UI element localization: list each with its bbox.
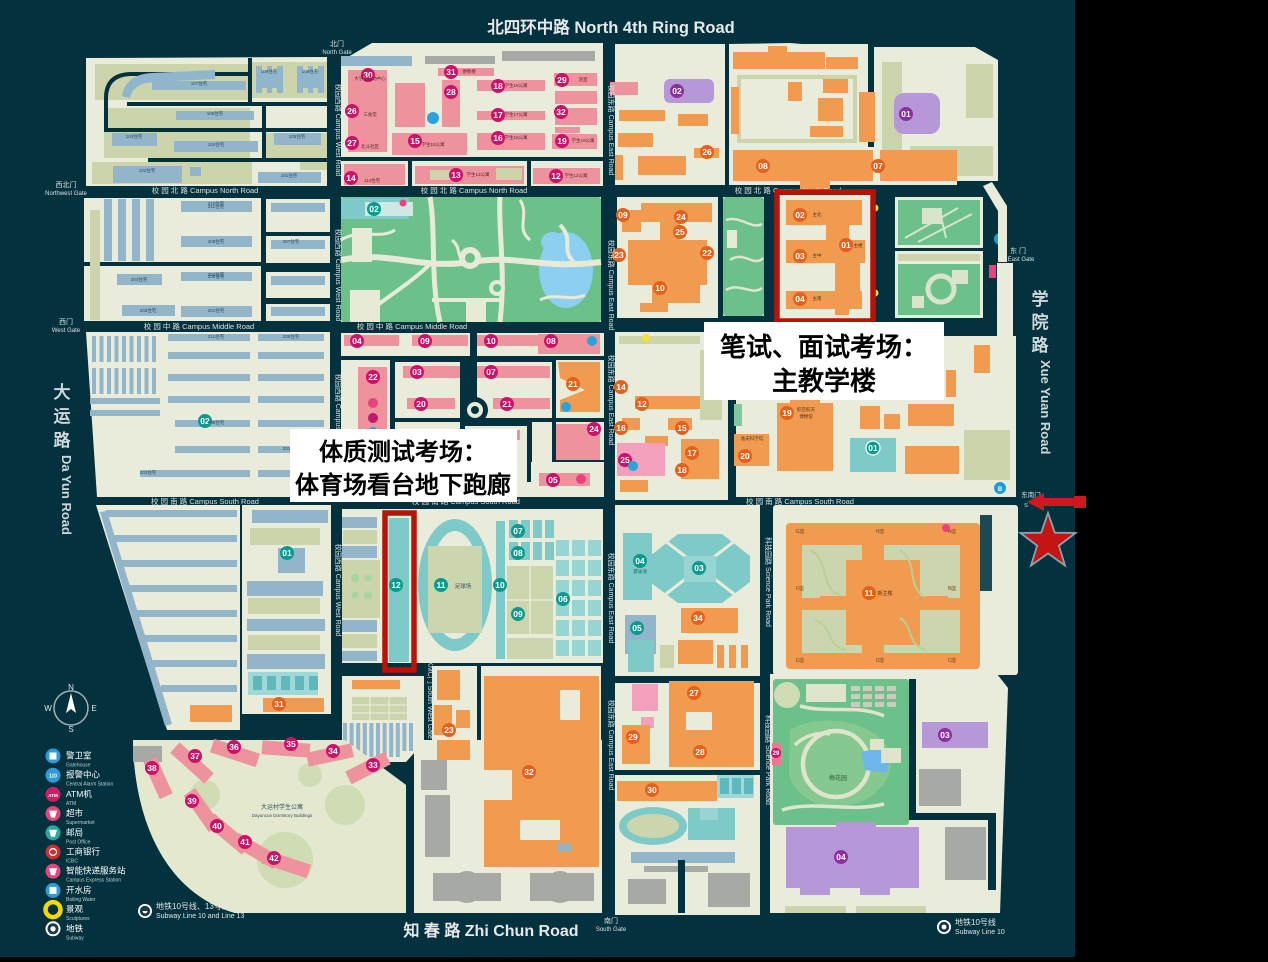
svg-text:19: 19 [557, 136, 567, 146]
svg-text:西门: 西门 [59, 317, 73, 326]
svg-text:Da Yun Road: Da Yun Road [59, 455, 74, 535]
svg-text:Dayuncun Dormitory Buildings: Dayuncun Dormitory Buildings [252, 813, 313, 818]
svg-text:14: 14 [616, 382, 626, 392]
svg-text:Subway Line 10: Subway Line 10 [955, 929, 1005, 936]
svg-text:邮局: 邮局 [66, 827, 83, 837]
svg-text:B: B [998, 487, 1003, 493]
svg-text:27: 27 [689, 688, 699, 698]
svg-text:211住宅: 211住宅 [208, 333, 225, 339]
svg-text:10: 10 [486, 336, 496, 346]
svg-text:41: 41 [240, 837, 250, 847]
svg-text:02: 02 [672, 86, 682, 96]
svg-text:大: 大 [54, 382, 71, 402]
svg-text:08: 08 [758, 161, 768, 171]
svg-text:16: 16 [616, 423, 626, 433]
svg-text:S: S [68, 725, 73, 734]
svg-text:G座: G座 [796, 528, 805, 535]
svg-text:12: 12 [637, 399, 647, 409]
svg-text:36: 36 [229, 742, 239, 752]
svg-text:22: 22 [702, 248, 712, 258]
svg-text:大运村学生公寓: 大运村学生公寓 [261, 803, 303, 811]
svg-text:B座: B座 [948, 585, 956, 592]
svg-text:39: 39 [187, 796, 197, 806]
svg-text:31: 31 [446, 67, 456, 77]
svg-text:逸夫科学馆: 逸夫科学馆 [741, 435, 764, 442]
svg-text:42: 42 [269, 853, 279, 863]
svg-text:21: 21 [502, 399, 512, 409]
svg-text:204住宅: 204住宅 [131, 276, 148, 282]
svg-text:校园东路 Campus East Road: 校园东路 Campus East Road [607, 553, 616, 644]
svg-text:路: 路 [1032, 335, 1050, 355]
svg-text:主楼: 主楼 [854, 242, 863, 249]
svg-text:24: 24 [676, 212, 686, 222]
svg-text:路: 路 [54, 430, 72, 450]
svg-text:地铁10号线: 地铁10号线 [955, 917, 996, 927]
svg-text:大学生活动中心: 大学生活动中心 [354, 75, 386, 82]
svg-text:校园东路 Campus East Road: 校园东路 Campus East Road [607, 240, 616, 331]
svg-text:South Gate: South Gate [596, 927, 627, 933]
svg-text:ICBC: ICBC [66, 859, 78, 865]
svg-text:208住宅: 208住宅 [208, 238, 225, 244]
svg-text:学生18公寓: 学生18公寓 [504, 82, 528, 89]
svg-text:07: 07 [513, 526, 523, 536]
svg-text:03: 03 [795, 251, 805, 261]
svg-text:运: 运 [54, 407, 71, 426]
svg-text:04: 04 [635, 556, 645, 566]
svg-text:208住宅: 208住宅 [208, 419, 225, 425]
svg-text:Campus Express Station: Campus Express Station [66, 878, 121, 884]
svg-text:101住宅: 101住宅 [281, 172, 298, 178]
svg-text:203住宅: 203住宅 [140, 307, 157, 313]
svg-text:17: 17 [687, 448, 697, 458]
svg-text:25: 25 [620, 455, 630, 465]
svg-text:主中: 主中 [813, 252, 822, 259]
svg-text:40: 40 [212, 821, 222, 831]
svg-text:体质测试考场：: 体质测试考场： [319, 439, 487, 466]
svg-text:E: E [91, 704, 96, 713]
svg-text:13: 13 [451, 170, 461, 180]
svg-text:游泳池: 游泳池 [633, 568, 647, 575]
svg-text:北门: 北门 [330, 39, 344, 48]
svg-text:33: 33 [368, 760, 378, 770]
svg-text:204住宅: 204住宅 [208, 271, 225, 277]
svg-text:114住宅: 114住宅 [364, 177, 381, 183]
svg-text:知 春 路 Zhi Chun Road: 知 春 路 Zhi Chun Road [403, 921, 578, 940]
svg-text:09: 09 [618, 210, 628, 220]
svg-text:A座: A座 [948, 528, 956, 535]
svg-text:20: 20 [416, 399, 426, 409]
svg-text:15: 15 [677, 423, 687, 433]
svg-text:01: 01 [901, 109, 911, 119]
svg-text:109住宅: 109住宅 [261, 68, 278, 74]
svg-text:KMC门 South West Gate: KMC门 South West Gate [426, 661, 435, 739]
svg-text:210住宅: 210住宅 [208, 200, 225, 206]
svg-text:Supermarket: Supermarket [66, 820, 95, 826]
svg-text:West Gate: West Gate [52, 328, 81, 334]
svg-text:N: N [68, 683, 74, 692]
svg-text:10: 10 [655, 283, 665, 293]
svg-text:工商银行: 工商银行 [66, 847, 101, 857]
svg-text:校园西路 Campus West Road: 校园西路 Campus West Road [334, 84, 343, 177]
svg-text:三食堂: 三食堂 [363, 111, 377, 118]
svg-text:北斗社区: 北斗社区 [361, 143, 379, 150]
svg-text:32: 32 [556, 107, 566, 117]
svg-text:Gatehouse: Gatehouse [66, 763, 91, 769]
svg-text:便教楼: 便教楼 [462, 68, 476, 75]
svg-text:西北门: 西北门 [56, 180, 77, 189]
svg-text:校 园 北 路 Campus North Road: 校 园 北 路 Campus North Road [421, 185, 528, 195]
svg-text:08: 08 [546, 336, 556, 346]
svg-text:学生13公寓: 学生13公寓 [466, 171, 490, 178]
svg-text:35: 35 [286, 739, 296, 749]
svg-text:开水房: 开水房 [66, 885, 92, 895]
svg-text:28: 28 [446, 87, 456, 97]
svg-text:博物馆: 博物馆 [799, 413, 813, 420]
svg-text:S: S [1024, 503, 1028, 509]
svg-text:20: 20 [740, 451, 750, 461]
svg-text:18: 18 [677, 465, 687, 475]
svg-text:12: 12 [391, 580, 401, 590]
svg-text:27: 27 [347, 138, 357, 148]
svg-text:05: 05 [632, 623, 642, 633]
svg-text:07: 07 [486, 367, 496, 377]
svg-text:主教学楼: 主教学楼 [772, 366, 876, 396]
svg-text:航空航天: 航空航天 [797, 406, 815, 413]
svg-text:201住宅: 201住宅 [208, 307, 225, 313]
svg-text:地铁: 地铁 [66, 923, 84, 933]
svg-text:校园西路 Campus West Road: 校园西路 Campus West Road [334, 229, 343, 322]
svg-text:警卫室: 警卫室 [66, 751, 92, 761]
svg-text:16: 16 [493, 133, 503, 143]
svg-text:19: 19 [782, 408, 792, 418]
svg-text:31: 31 [274, 699, 284, 709]
svg-text:学生15公寓: 学生15公寓 [421, 141, 445, 148]
svg-text:09: 09 [420, 336, 430, 346]
svg-text:Boiling Water: Boiling Water [66, 897, 96, 903]
svg-text:Northwest Gate: Northwest Gate [45, 191, 87, 197]
svg-text:18: 18 [493, 81, 503, 91]
svg-text:校园东路 Campus East Road: 校园东路 Campus East Road [607, 700, 616, 791]
svg-text:校园西路 Campus West Road: 校园西路 Campus West Road [334, 544, 343, 637]
svg-text:梅花园: 梅花园 [829, 774, 847, 782]
svg-text:04: 04 [836, 852, 846, 862]
svg-text:主南: 主南 [813, 295, 822, 301]
svg-text:地铁10号线、13号线: 地铁10号线、13号线 [156, 901, 230, 911]
svg-text:东 门: 东 门 [1010, 246, 1026, 255]
svg-text:科技园路 Science Park Road: 科技园路 Science Park Road [764, 715, 773, 805]
svg-text:38: 38 [147, 763, 157, 773]
svg-text:足球场: 足球场 [455, 582, 472, 590]
svg-text:11: 11 [437, 580, 446, 590]
svg-text:院: 院 [1032, 312, 1049, 332]
svg-text:H座: H座 [876, 528, 885, 535]
svg-text:学生16公寓: 学生16公寓 [504, 134, 528, 141]
svg-text:主北: 主北 [813, 211, 822, 218]
svg-text:校 园 南 路 Campus South Road: 校 园 南 路 Campus South Road [746, 496, 854, 506]
svg-text:14: 14 [346, 173, 356, 183]
svg-text:North Gate: North Gate [322, 50, 352, 56]
svg-text:34: 34 [693, 613, 703, 623]
svg-text:23: 23 [614, 250, 624, 260]
svg-text:29: 29 [773, 751, 780, 757]
svg-text:新主楼: 新主楼 [877, 590, 892, 597]
svg-text:校 园 南 路 Campus South Road: 校 园 南 路 Campus South Road [151, 496, 259, 506]
svg-text:浴室: 浴室 [579, 76, 588, 83]
svg-text:205住宅: 205住宅 [283, 333, 300, 339]
svg-text:29: 29 [557, 75, 567, 85]
svg-text:103住宅: 103住宅 [126, 133, 143, 139]
svg-text:Central Alarm Station: Central Alarm Station [66, 782, 113, 788]
svg-text:03: 03 [940, 730, 950, 740]
svg-text:体育场看台地下跑廊: 体育场看台地下跑廊 [295, 471, 511, 499]
svg-text:25: 25 [675, 227, 685, 237]
svg-text:02: 02 [795, 210, 805, 220]
svg-text:Xue Yuan Road: Xue Yuan Road [1038, 360, 1053, 454]
svg-text:17: 17 [493, 110, 503, 120]
svg-text:Subway Line 10 and Line 13: Subway Line 10 and Line 13 [156, 913, 244, 920]
svg-text:W: W [44, 704, 52, 713]
svg-text:校 园 中 路 Campus Middle Road: 校 园 中 路 Campus Middle Road [357, 321, 467, 331]
svg-text:超市: 超市 [66, 808, 84, 818]
svg-text:28: 28 [695, 747, 705, 757]
svg-text:校园东路 Campus East Road: 校园东路 Campus East Road [607, 85, 616, 176]
svg-text:智能快递服务站: 智能快递服务站 [66, 866, 126, 876]
svg-text:Sculptures: Sculptures [66, 916, 90, 922]
svg-text:03: 03 [694, 563, 704, 573]
svg-text:科技园路 Science Park Road: 科技园路 Science Park Road [764, 537, 773, 627]
svg-text:03: 03 [412, 367, 422, 377]
svg-text:106住宅: 106住宅 [207, 110, 224, 116]
svg-text:04: 04 [795, 294, 805, 304]
svg-text:08: 08 [513, 548, 523, 558]
svg-text:21: 21 [568, 379, 578, 389]
svg-text:12: 12 [551, 171, 561, 181]
svg-text:02: 02 [369, 204, 379, 214]
svg-text:26: 26 [347, 106, 357, 116]
svg-text:105住宅: 105住宅 [289, 133, 306, 139]
svg-text:笔试、面试考场：: 笔试、面试考场： [720, 332, 928, 362]
svg-text:102住宅: 102住宅 [139, 167, 156, 173]
svg-text:北四环中路 North 4th Ring Road: 北四环中路 North 4th Ring Road [487, 17, 734, 37]
svg-text:F座: F座 [796, 585, 804, 592]
svg-text:24: 24 [589, 424, 599, 434]
svg-text:32: 32 [524, 767, 534, 777]
svg-text:203住宅: 203住宅 [140, 469, 157, 475]
svg-text:07: 07 [873, 161, 883, 171]
svg-text:207住宅: 207住宅 [283, 238, 300, 244]
svg-text:22: 22 [368, 372, 378, 382]
svg-text:ATM: ATM [48, 793, 58, 798]
svg-text:23: 23 [444, 725, 454, 735]
svg-text:37: 37 [190, 751, 200, 761]
svg-text:09: 09 [513, 609, 523, 619]
svg-text:ATM: ATM [66, 801, 76, 807]
svg-text:校 园 中 路 Campus Middle Road: 校 园 中 路 Campus Middle Road [144, 321, 254, 331]
svg-text:C座: C座 [948, 657, 957, 664]
svg-text:景观: 景观 [66, 904, 84, 914]
svg-text:11: 11 [865, 588, 874, 598]
svg-text:D座: D座 [876, 657, 885, 664]
svg-text:Post Office: Post Office [66, 839, 91, 845]
svg-text:ATM机: ATM机 [66, 789, 92, 799]
svg-text:34: 34 [328, 746, 338, 756]
svg-text:108住宅: 108住宅 [302, 68, 319, 74]
svg-text:10: 10 [495, 580, 505, 590]
svg-text:04: 04 [352, 336, 362, 346]
svg-text:30: 30 [647, 785, 657, 795]
svg-text:01: 01 [841, 240, 851, 250]
svg-text:15: 15 [410, 136, 420, 146]
svg-text:01: 01 [282, 548, 292, 558]
svg-text:学生17公寓: 学生17公寓 [504, 111, 528, 118]
svg-text:E座: E座 [796, 657, 804, 664]
svg-text:学: 学 [1032, 289, 1049, 309]
svg-text:01: 01 [868, 443, 878, 453]
svg-text:学生12公寓: 学生12公寓 [564, 172, 588, 179]
svg-text:校 园 北 路 Campus North Road: 校 园 北 路 Campus North Road [152, 185, 259, 195]
svg-text:26: 26 [702, 147, 712, 157]
svg-text:110: 110 [49, 774, 57, 780]
svg-text:校园东路 Campus East Road: 校园东路 Campus East Road [607, 355, 616, 446]
svg-text:107住宅: 107住宅 [191, 80, 208, 86]
svg-text:East Gate: East Gate [1008, 257, 1035, 263]
svg-text:104住宅: 104住宅 [208, 141, 225, 147]
svg-text:学生19公寓: 学生19公寓 [571, 137, 595, 144]
svg-text:29: 29 [628, 732, 638, 742]
svg-text:Subway: Subway [66, 935, 84, 941]
svg-text:南门: 南门 [604, 916, 618, 925]
svg-text:报警中心: 报警中心 [66, 770, 101, 780]
svg-text:06: 06 [558, 594, 568, 604]
svg-text:05: 05 [548, 475, 558, 485]
